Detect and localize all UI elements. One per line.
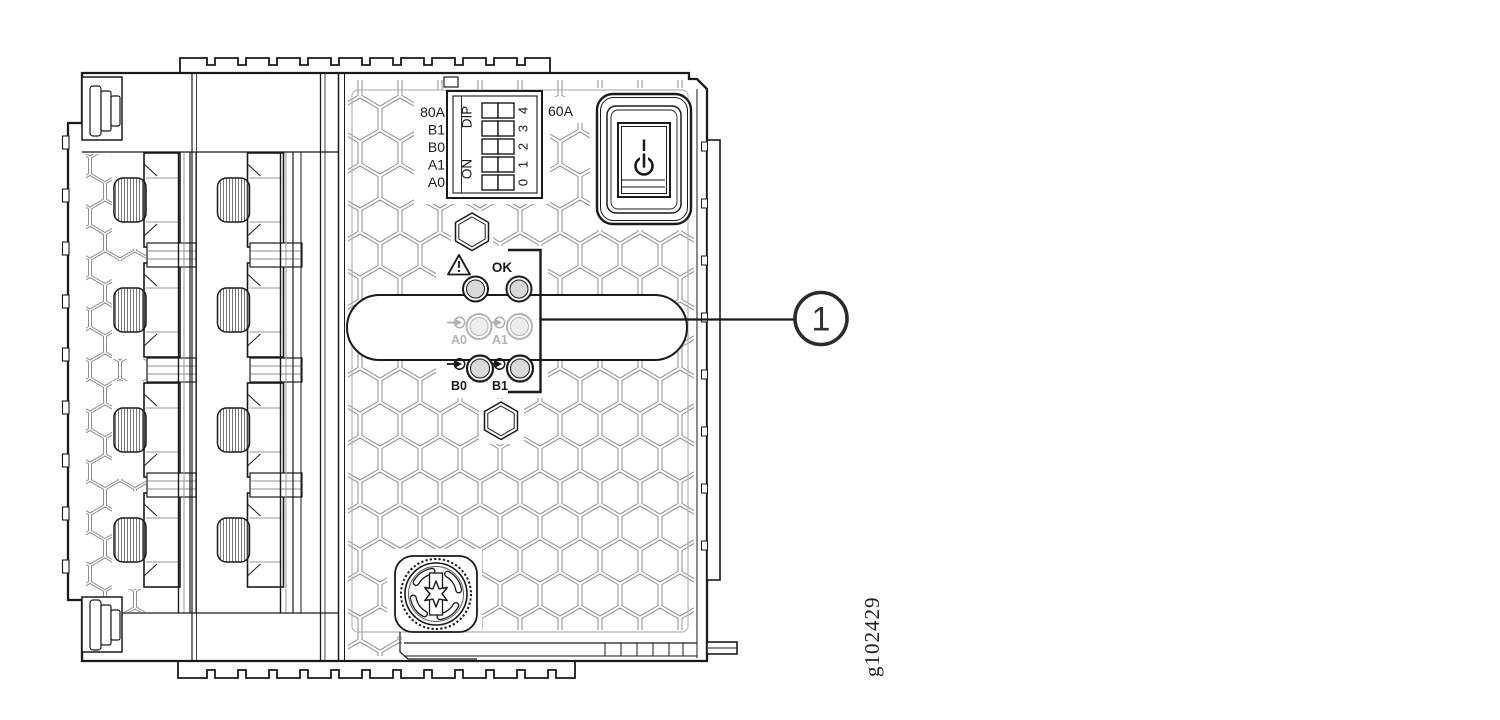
dip-row-label-b0: B0 bbox=[428, 139, 445, 155]
terminal-row bbox=[112, 261, 308, 359]
figure-id: g102429 bbox=[860, 597, 884, 678]
terminal-row bbox=[112, 381, 308, 479]
b1-label: B1 bbox=[492, 379, 508, 393]
rating-60a-label: 60A bbox=[548, 103, 574, 119]
right-side-rail bbox=[702, 140, 721, 580]
led-alarm bbox=[463, 277, 488, 302]
a1-label: A1 bbox=[492, 333, 508, 347]
power-switch[interactable]: I bbox=[597, 94, 691, 224]
dip-position-1: 1 bbox=[516, 161, 531, 168]
callout-number: 1 bbox=[812, 301, 831, 339]
callout-1: 1 bbox=[795, 293, 847, 345]
figure-canvas: DIP ON 4 3 2 1 0 80A B1 B0 A1 A0 60A I bbox=[0, 0, 1500, 720]
dip-position-2: 2 bbox=[516, 143, 531, 150]
terminal-row bbox=[112, 491, 308, 589]
left-edge-teeth bbox=[63, 136, 70, 573]
dip-position-4: 4 bbox=[516, 107, 531, 114]
dip-row-2[interactable] bbox=[482, 139, 514, 154]
dip-row-label-a1: A1 bbox=[428, 157, 445, 173]
dip-position-3: 3 bbox=[516, 125, 531, 132]
psu-line-drawing: DIP ON 4 3 2 1 0 80A B1 B0 A1 A0 60A I bbox=[0, 0, 1500, 720]
bottom-right-pin bbox=[707, 642, 737, 654]
ok-label: OK bbox=[492, 260, 513, 275]
dip-row-label-b1: B1 bbox=[428, 122, 445, 138]
dip-switch-block[interactable]: DIP ON 4 3 2 1 0 bbox=[447, 91, 542, 198]
top-guide-rail bbox=[180, 58, 550, 73]
b0-label: B0 bbox=[451, 379, 467, 393]
bottom-latch bbox=[82, 597, 122, 652]
terminal-row bbox=[112, 151, 308, 249]
faceplate-top-tab bbox=[444, 77, 458, 87]
top-latch bbox=[82, 77, 122, 140]
dip-position-0: 0 bbox=[516, 179, 531, 186]
dip-row-4[interactable] bbox=[482, 103, 514, 118]
dip-row-label-80a: 80A bbox=[420, 104, 446, 120]
dip-row-label-a0: A0 bbox=[428, 174, 445, 190]
bottom-guide-rail bbox=[178, 661, 575, 678]
terminal-joint bbox=[147, 358, 302, 382]
dip-row-1[interactable] bbox=[482, 157, 514, 172]
dip-row-3[interactable] bbox=[482, 121, 514, 136]
dip-label: DIP bbox=[460, 106, 475, 129]
dc-terminal-block bbox=[82, 151, 338, 613]
a0-label: A0 bbox=[451, 333, 467, 347]
on-label: ON bbox=[460, 159, 475, 179]
dip-row-0[interactable] bbox=[482, 175, 514, 190]
power-on-label: I bbox=[642, 136, 647, 155]
led-ok bbox=[507, 277, 532, 302]
